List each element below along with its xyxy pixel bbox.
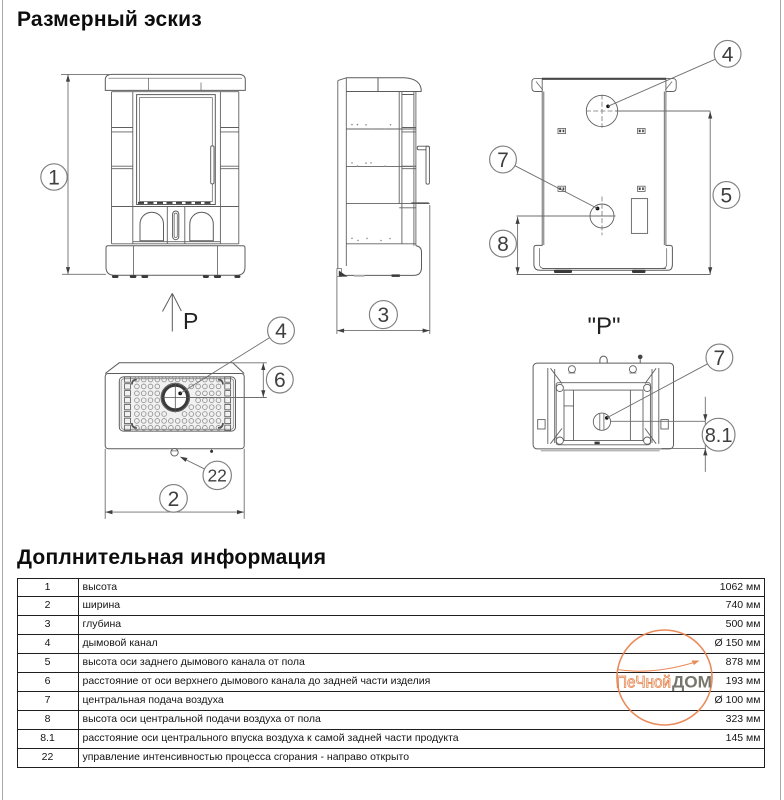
svg-text:4: 4 bbox=[275, 320, 287, 343]
svg-text:7: 7 bbox=[497, 149, 509, 172]
svg-text:"P": "P" bbox=[587, 313, 620, 340]
svg-text:5: 5 bbox=[721, 184, 733, 207]
svg-text:6: 6 bbox=[274, 369, 286, 392]
svg-text:2: 2 bbox=[168, 488, 180, 511]
svg-text:8.1: 8.1 bbox=[705, 425, 733, 447]
svg-text:8: 8 bbox=[497, 233, 509, 256]
svg-text:3: 3 bbox=[378, 304, 390, 327]
svg-text:ДОМ: ДОМ bbox=[672, 673, 712, 692]
svg-text:22: 22 bbox=[207, 466, 226, 486]
svg-text:1: 1 bbox=[48, 166, 60, 189]
svg-text:4: 4 bbox=[722, 43, 734, 66]
svg-text:7: 7 bbox=[714, 347, 726, 370]
svg-text:P: P bbox=[183, 308, 198, 334]
svg-text:ПеЧной: ПеЧной bbox=[616, 673, 671, 692]
